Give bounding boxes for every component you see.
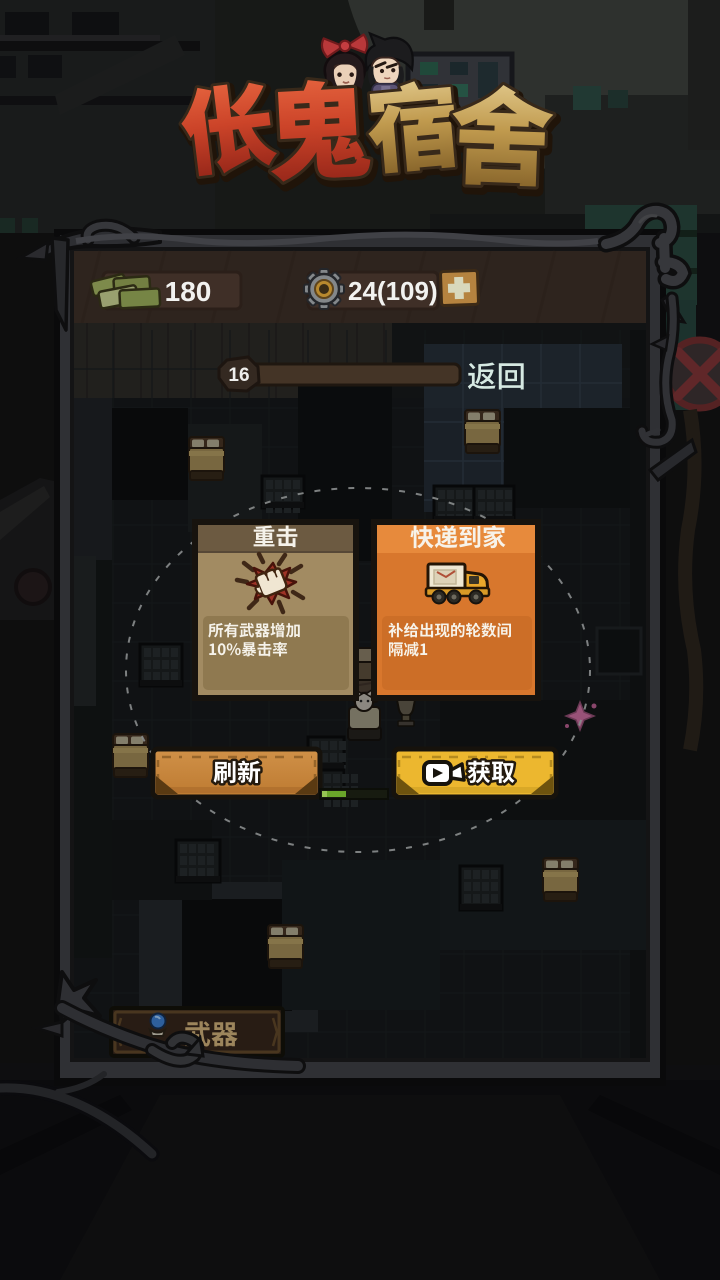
svg-text:180: 180 <box>165 276 212 307</box>
svg-text:16: 16 <box>228 365 249 386</box>
svg-text:24(109): 24(109) <box>348 276 438 306</box>
